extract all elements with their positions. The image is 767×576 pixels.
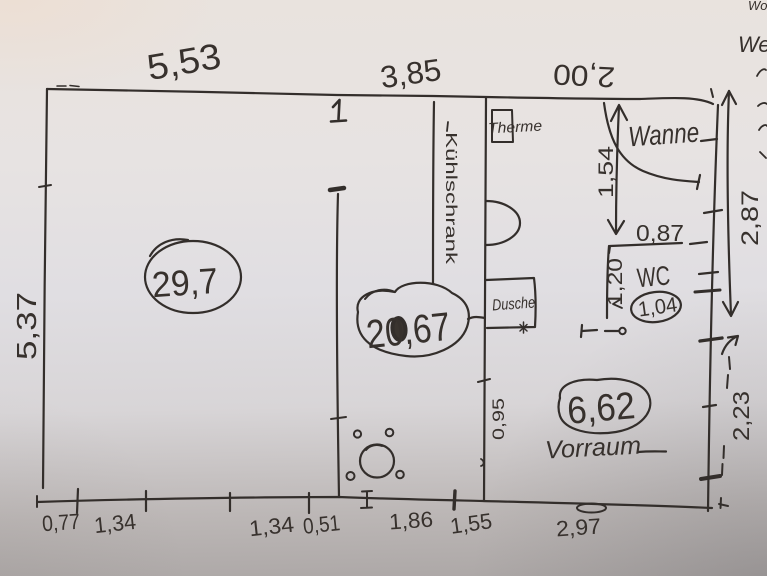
svg-text:0,51: 0,51 bbox=[302, 510, 341, 539]
svg-text:1,54: 1,54 bbox=[595, 146, 618, 198]
svg-text:Vorraum: Vorraum bbox=[544, 432, 641, 465]
svg-text:2,87: 2,87 bbox=[737, 190, 764, 246]
svg-text:Therme: Therme bbox=[488, 118, 543, 138]
svg-text:1,55: 1,55 bbox=[449, 508, 494, 539]
svg-text:WC: WC bbox=[636, 260, 671, 293]
svg-text:1,34: 1,34 bbox=[93, 509, 137, 538]
svg-text:29,7: 29,7 bbox=[151, 260, 220, 306]
svg-text:0,95: 0,95 bbox=[489, 398, 508, 440]
svg-text:2,97: 2,97 bbox=[555, 513, 602, 541]
svg-text:2,23: 2,23 bbox=[728, 391, 754, 441]
svg-text:0,87: 0,87 bbox=[636, 220, 684, 246]
svg-text:1,20: 1,20 bbox=[604, 258, 627, 306]
svg-text:3,85: 3,85 bbox=[378, 52, 443, 95]
svg-text:We: We bbox=[738, 32, 767, 57]
svg-text:1,34: 1,34 bbox=[248, 512, 295, 542]
svg-text:Kühlschrank: Kühlschrank bbox=[442, 132, 459, 264]
svg-text:5,37: 5,37 bbox=[11, 292, 42, 360]
svg-text:6,62: 6,62 bbox=[565, 385, 636, 433]
svg-text:0,77: 0,77 bbox=[41, 509, 81, 537]
svg-text:2,00: 2,00 bbox=[552, 57, 616, 92]
svg-text:20,67: 20,67 bbox=[364, 305, 452, 358]
svg-text:Wanne: Wanne bbox=[627, 117, 700, 153]
svg-text:1,86: 1,86 bbox=[388, 506, 434, 534]
svg-text:5,53: 5,53 bbox=[144, 35, 224, 88]
svg-text:Dusche: Dusche bbox=[492, 294, 536, 314]
svg-text:Wo: Wo bbox=[748, 0, 767, 13]
